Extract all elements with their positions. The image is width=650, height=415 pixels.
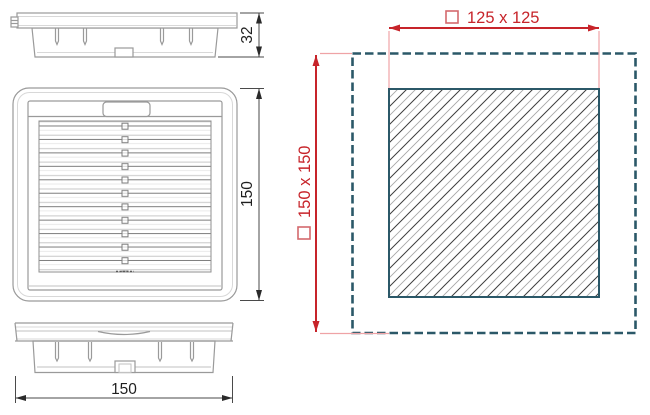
cutout-hatched-square (389, 89, 599, 297)
depth-dimension-label: 32 (239, 26, 256, 43)
square-symbol-icon (446, 11, 458, 23)
front-view: 150 (13, 88, 264, 301)
drawing-canvas: 32 150 (0, 0, 650, 415)
latch-notch (115, 48, 133, 57)
arrowhead-up-icon (313, 55, 320, 66)
filter-fan-technical-drawing: 32 150 (0, 0, 650, 415)
arrowhead-left-icon (389, 25, 400, 32)
flange-end-cap (15, 323, 17, 341)
cutout-width-dimension: 125 x 125 (389, 9, 599, 88)
arrowhead-up-icon (256, 89, 262, 100)
square-symbol-icon (298, 227, 310, 239)
corner-clip (11, 17, 18, 27)
top-profile-view: 32 (11, 13, 264, 57)
arrowhead-up-icon (256, 13, 262, 24)
arrowhead-right-icon (588, 25, 599, 32)
width-dimension-label: 150 (111, 381, 137, 398)
overall-height-dimension: 150 x 150 (296, 54, 389, 334)
height-dimension-label: 150 (239, 181, 256, 207)
flange-end-cap (231, 323, 233, 341)
arrowhead-right-icon (222, 395, 233, 401)
bottom-profile-view: 150 (15, 323, 233, 403)
cutout-diagram: 125 x 125 150 x 150 (296, 9, 636, 334)
height-dimension: 150 (239, 89, 264, 301)
width-dimension: 150 (16, 376, 233, 403)
arrowhead-down-icon (313, 321, 320, 332)
overall-dimension-label: 150 x 150 (296, 146, 314, 218)
arrowhead-left-icon (16, 395, 27, 401)
top-latch-tab (103, 102, 150, 117)
louver-center-clips (121, 121, 130, 272)
arrowhead-down-icon (256, 290, 262, 301)
latch-notch (115, 361, 135, 373)
arrowhead-down-icon (256, 47, 262, 58)
flange-center-curve (98, 332, 150, 335)
cutout-dimension-label: 125 x 125 (467, 9, 539, 27)
